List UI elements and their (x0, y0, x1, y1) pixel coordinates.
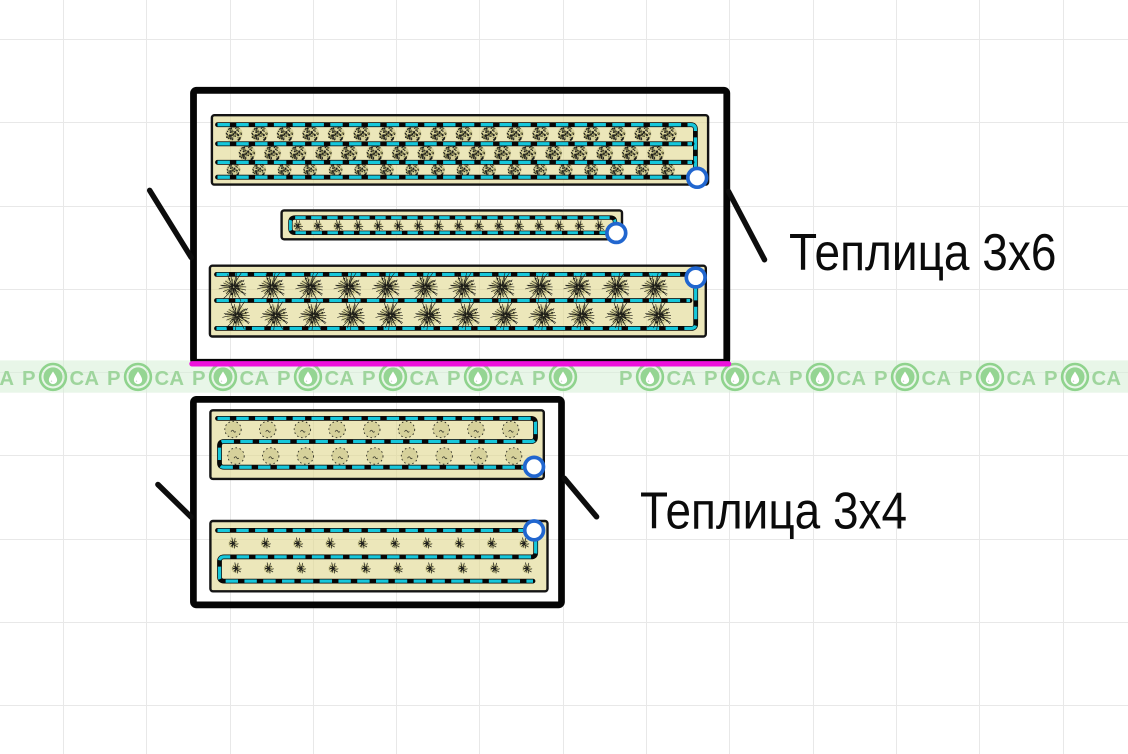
svg-text:СА: СА (837, 368, 867, 390)
svg-text:СА: СА (667, 368, 697, 390)
svg-text:Р: Р (192, 368, 206, 390)
svg-text:СА: СА (410, 368, 440, 390)
svg-text:СА: СА (70, 368, 100, 390)
svg-text:СА: СА (0, 368, 15, 390)
svg-text:СА: СА (240, 368, 270, 390)
svg-text:Р: Р (704, 368, 718, 390)
svg-text:СА: СА (752, 368, 782, 390)
svg-text:Теплица 3x4: Теплица 3x4 (640, 481, 907, 539)
svg-text:Р: Р (532, 368, 546, 390)
svg-text:СА: СА (155, 368, 185, 390)
svg-text:Р: Р (619, 368, 633, 390)
svg-text:Р: Р (22, 368, 36, 390)
svg-text:Р: Р (1044, 368, 1058, 390)
svg-text:Р: Р (959, 368, 973, 390)
svg-text:Р: Р (447, 368, 461, 390)
svg-text:Р: Р (107, 368, 121, 390)
svg-text:СА: СА (1092, 368, 1122, 390)
svg-text:Р: Р (789, 368, 803, 390)
svg-text:Р: Р (362, 368, 376, 390)
svg-text:Теплица 3x6: Теплица 3x6 (789, 223, 1057, 281)
svg-text:Р: Р (874, 368, 888, 390)
svg-text:СА: СА (495, 368, 525, 390)
svg-text:СА: СА (1007, 368, 1037, 390)
svg-text:СА: СА (325, 368, 355, 390)
svg-text:СА: СА (922, 368, 952, 390)
svg-text:Р: Р (277, 368, 291, 390)
